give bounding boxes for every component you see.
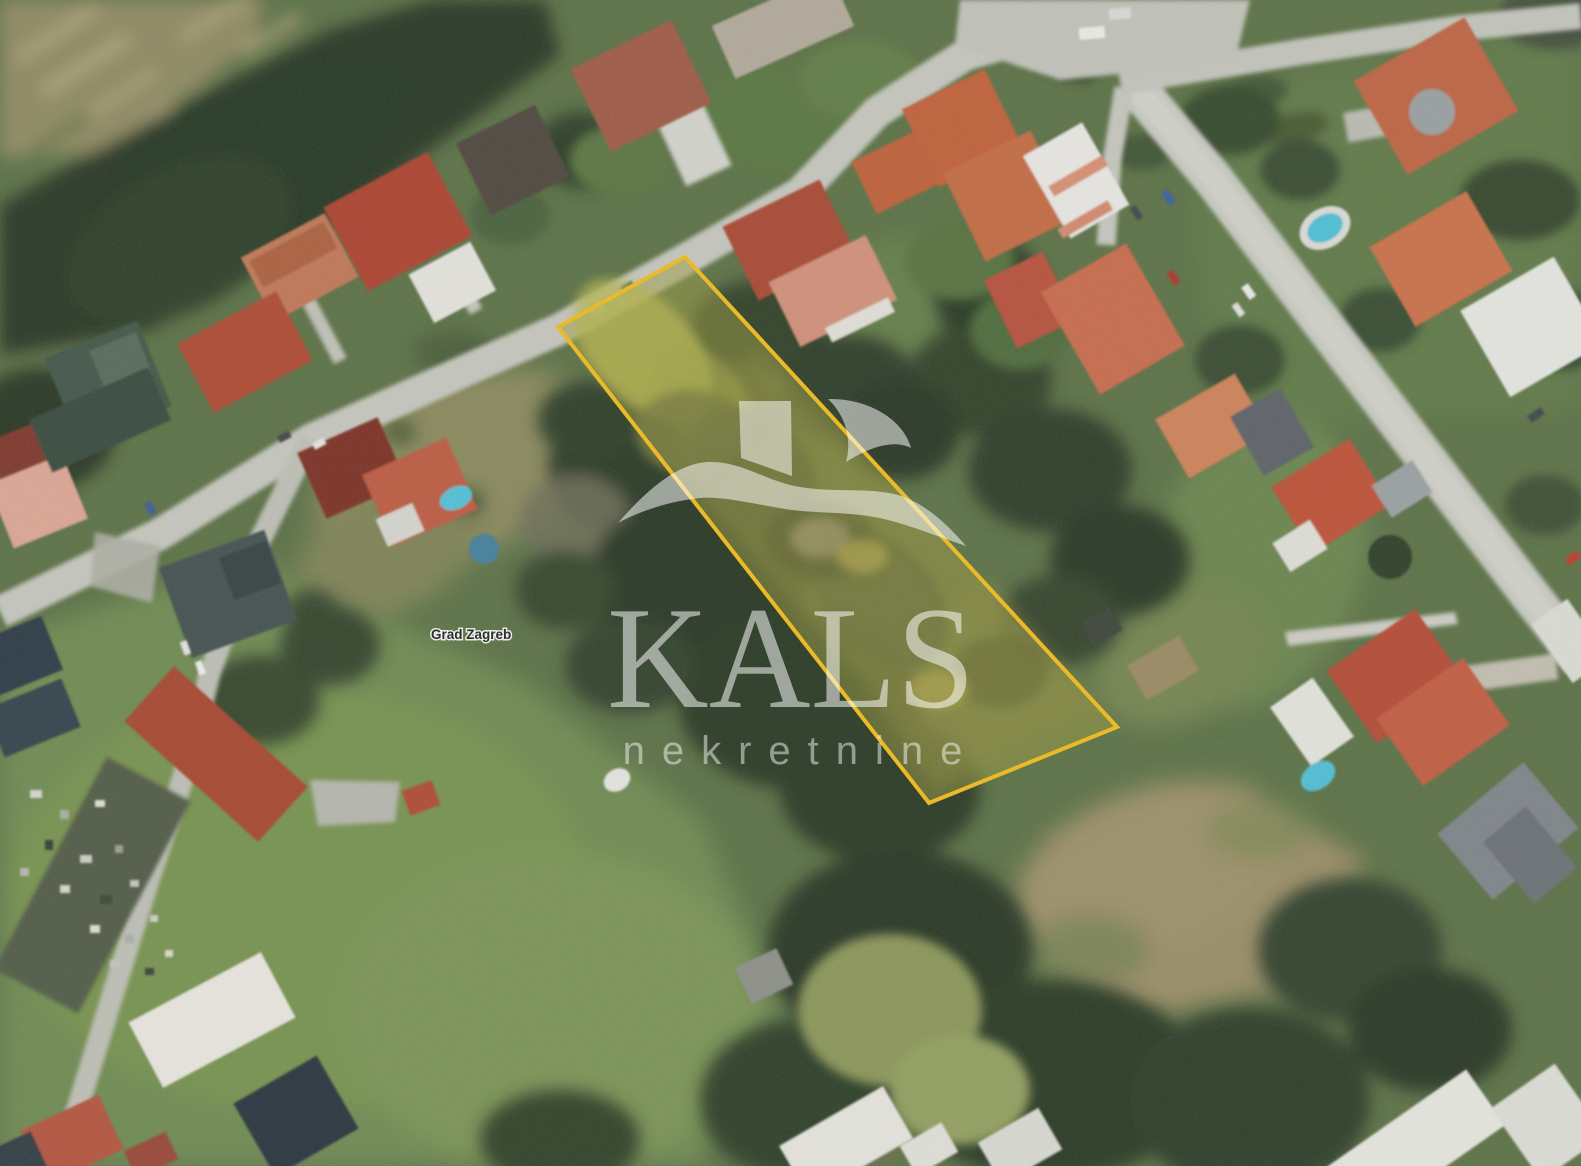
svg-text:KALS: KALS: [607, 577, 975, 739]
svg-text:Grad Zagreb: Grad Zagreb: [431, 627, 511, 642]
svg-text:nekretnine: nekretnine: [623, 729, 980, 773]
